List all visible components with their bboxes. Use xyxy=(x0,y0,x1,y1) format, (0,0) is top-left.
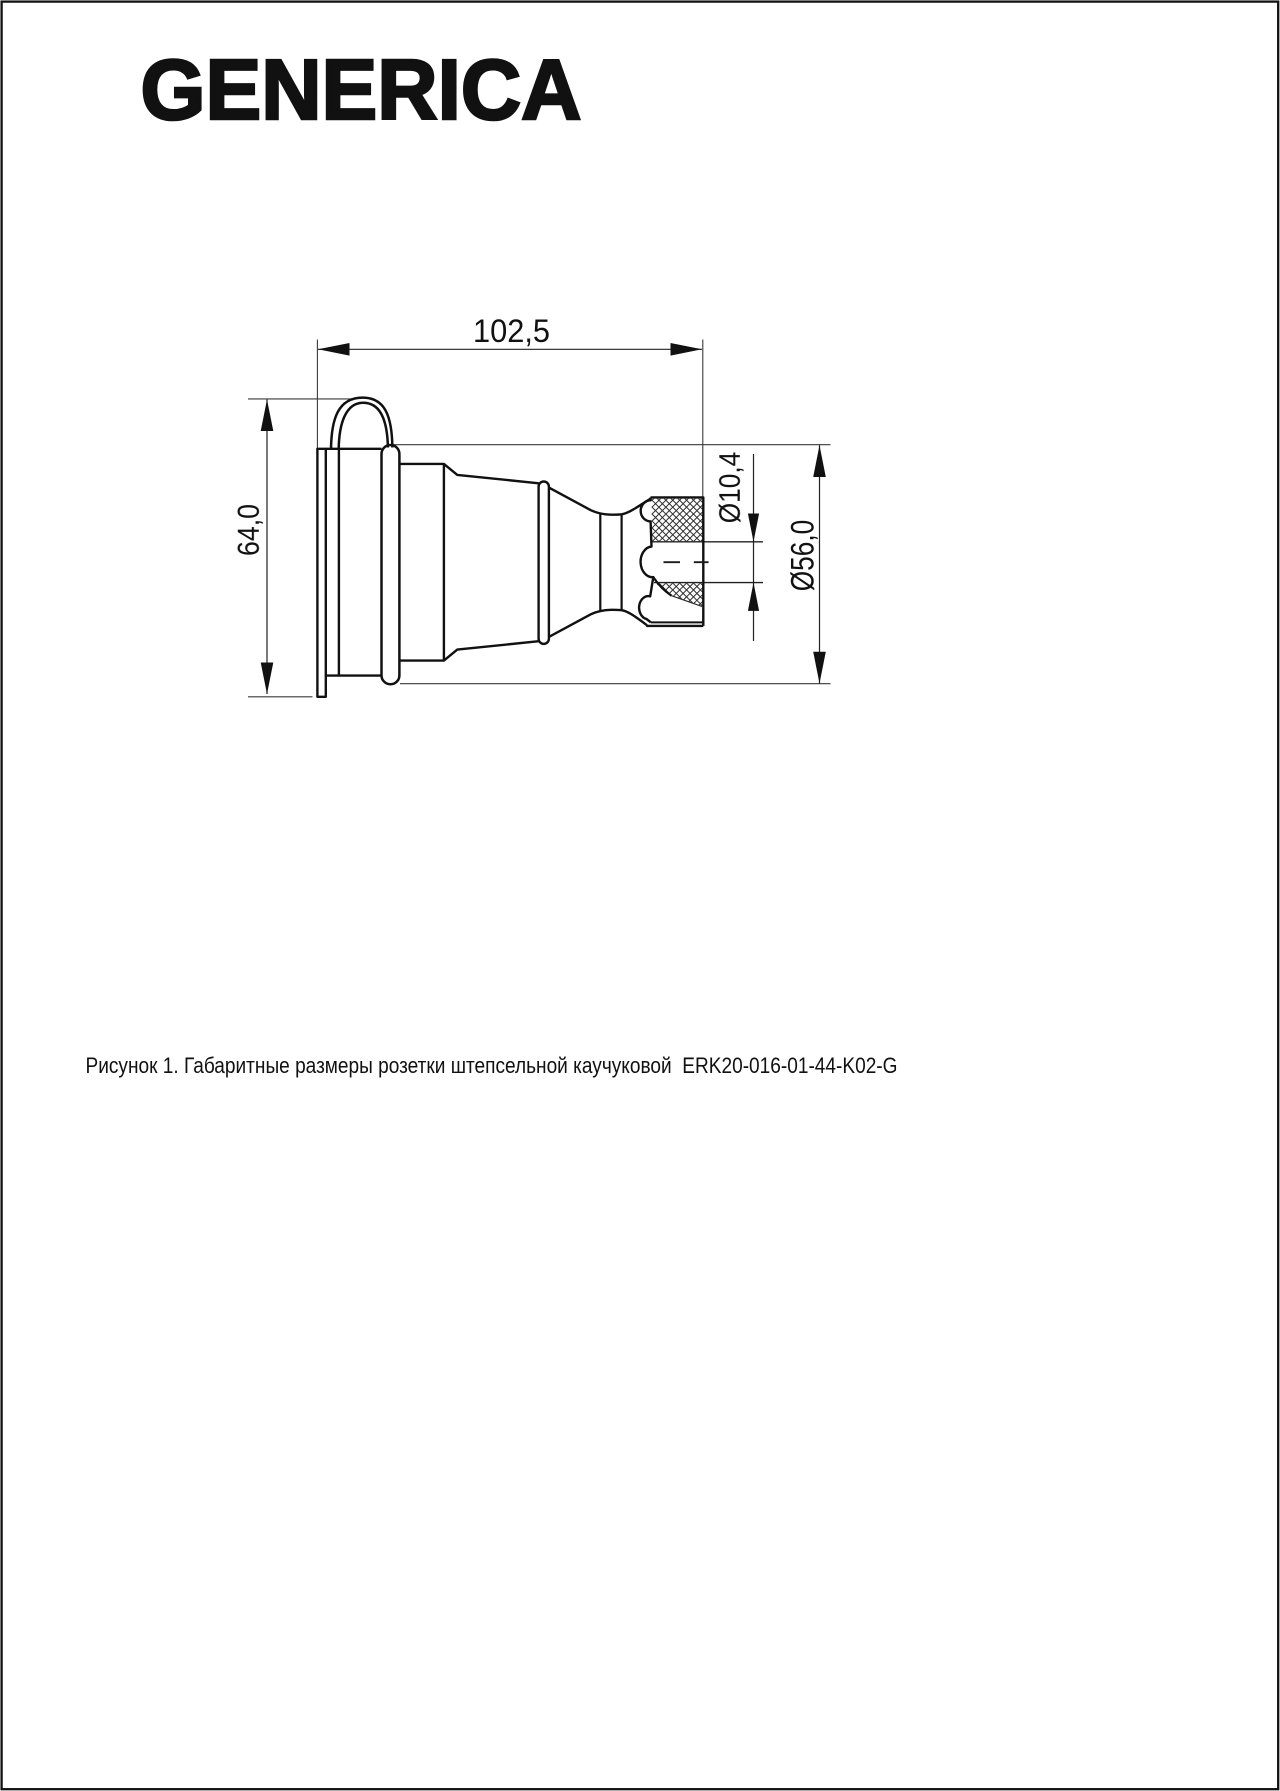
svg-text:102,5: 102,5 xyxy=(473,313,550,349)
svg-text:Рисунок 1. Габаритные размеры: Рисунок 1. Габаритные размеры розетки шт… xyxy=(86,1053,898,1078)
svg-text:Ø56,0: Ø56,0 xyxy=(785,520,821,592)
svg-text:GENERICA: GENERICA xyxy=(141,43,582,138)
svg-text:64,0: 64,0 xyxy=(232,504,266,556)
svg-text:Ø10,4: Ø10,4 xyxy=(714,452,747,524)
